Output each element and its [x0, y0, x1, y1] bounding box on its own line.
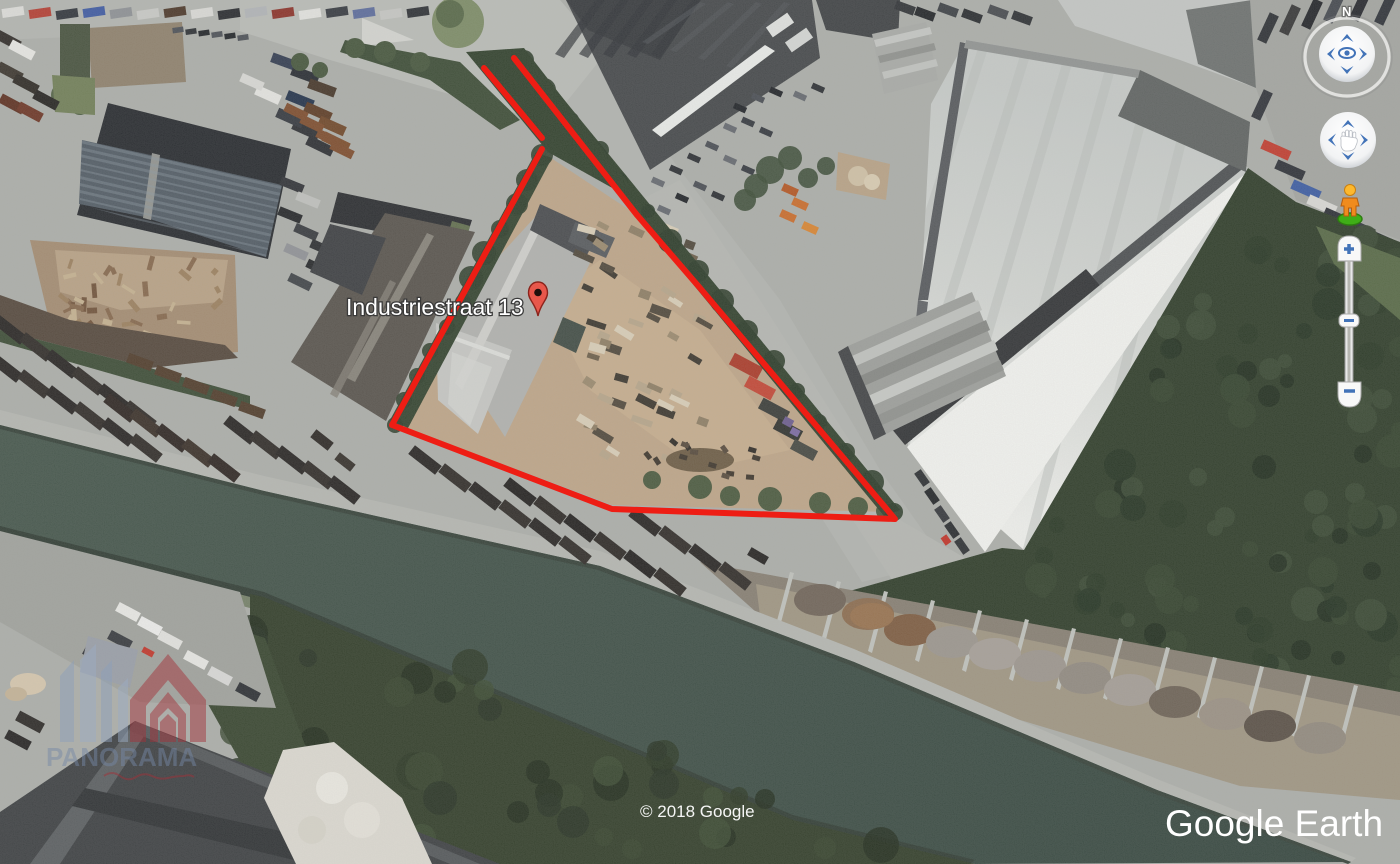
- svg-text:© 2018 Google: © 2018 Google: [640, 802, 755, 821]
- svg-text:N: N: [1342, 4, 1351, 19]
- svg-text:PANORAMA: PANORAMA: [46, 742, 197, 772]
- svg-text:Google Earth: Google Earth: [1165, 803, 1383, 844]
- svg-text:Industriestraat 13: Industriestraat 13: [346, 294, 524, 320]
